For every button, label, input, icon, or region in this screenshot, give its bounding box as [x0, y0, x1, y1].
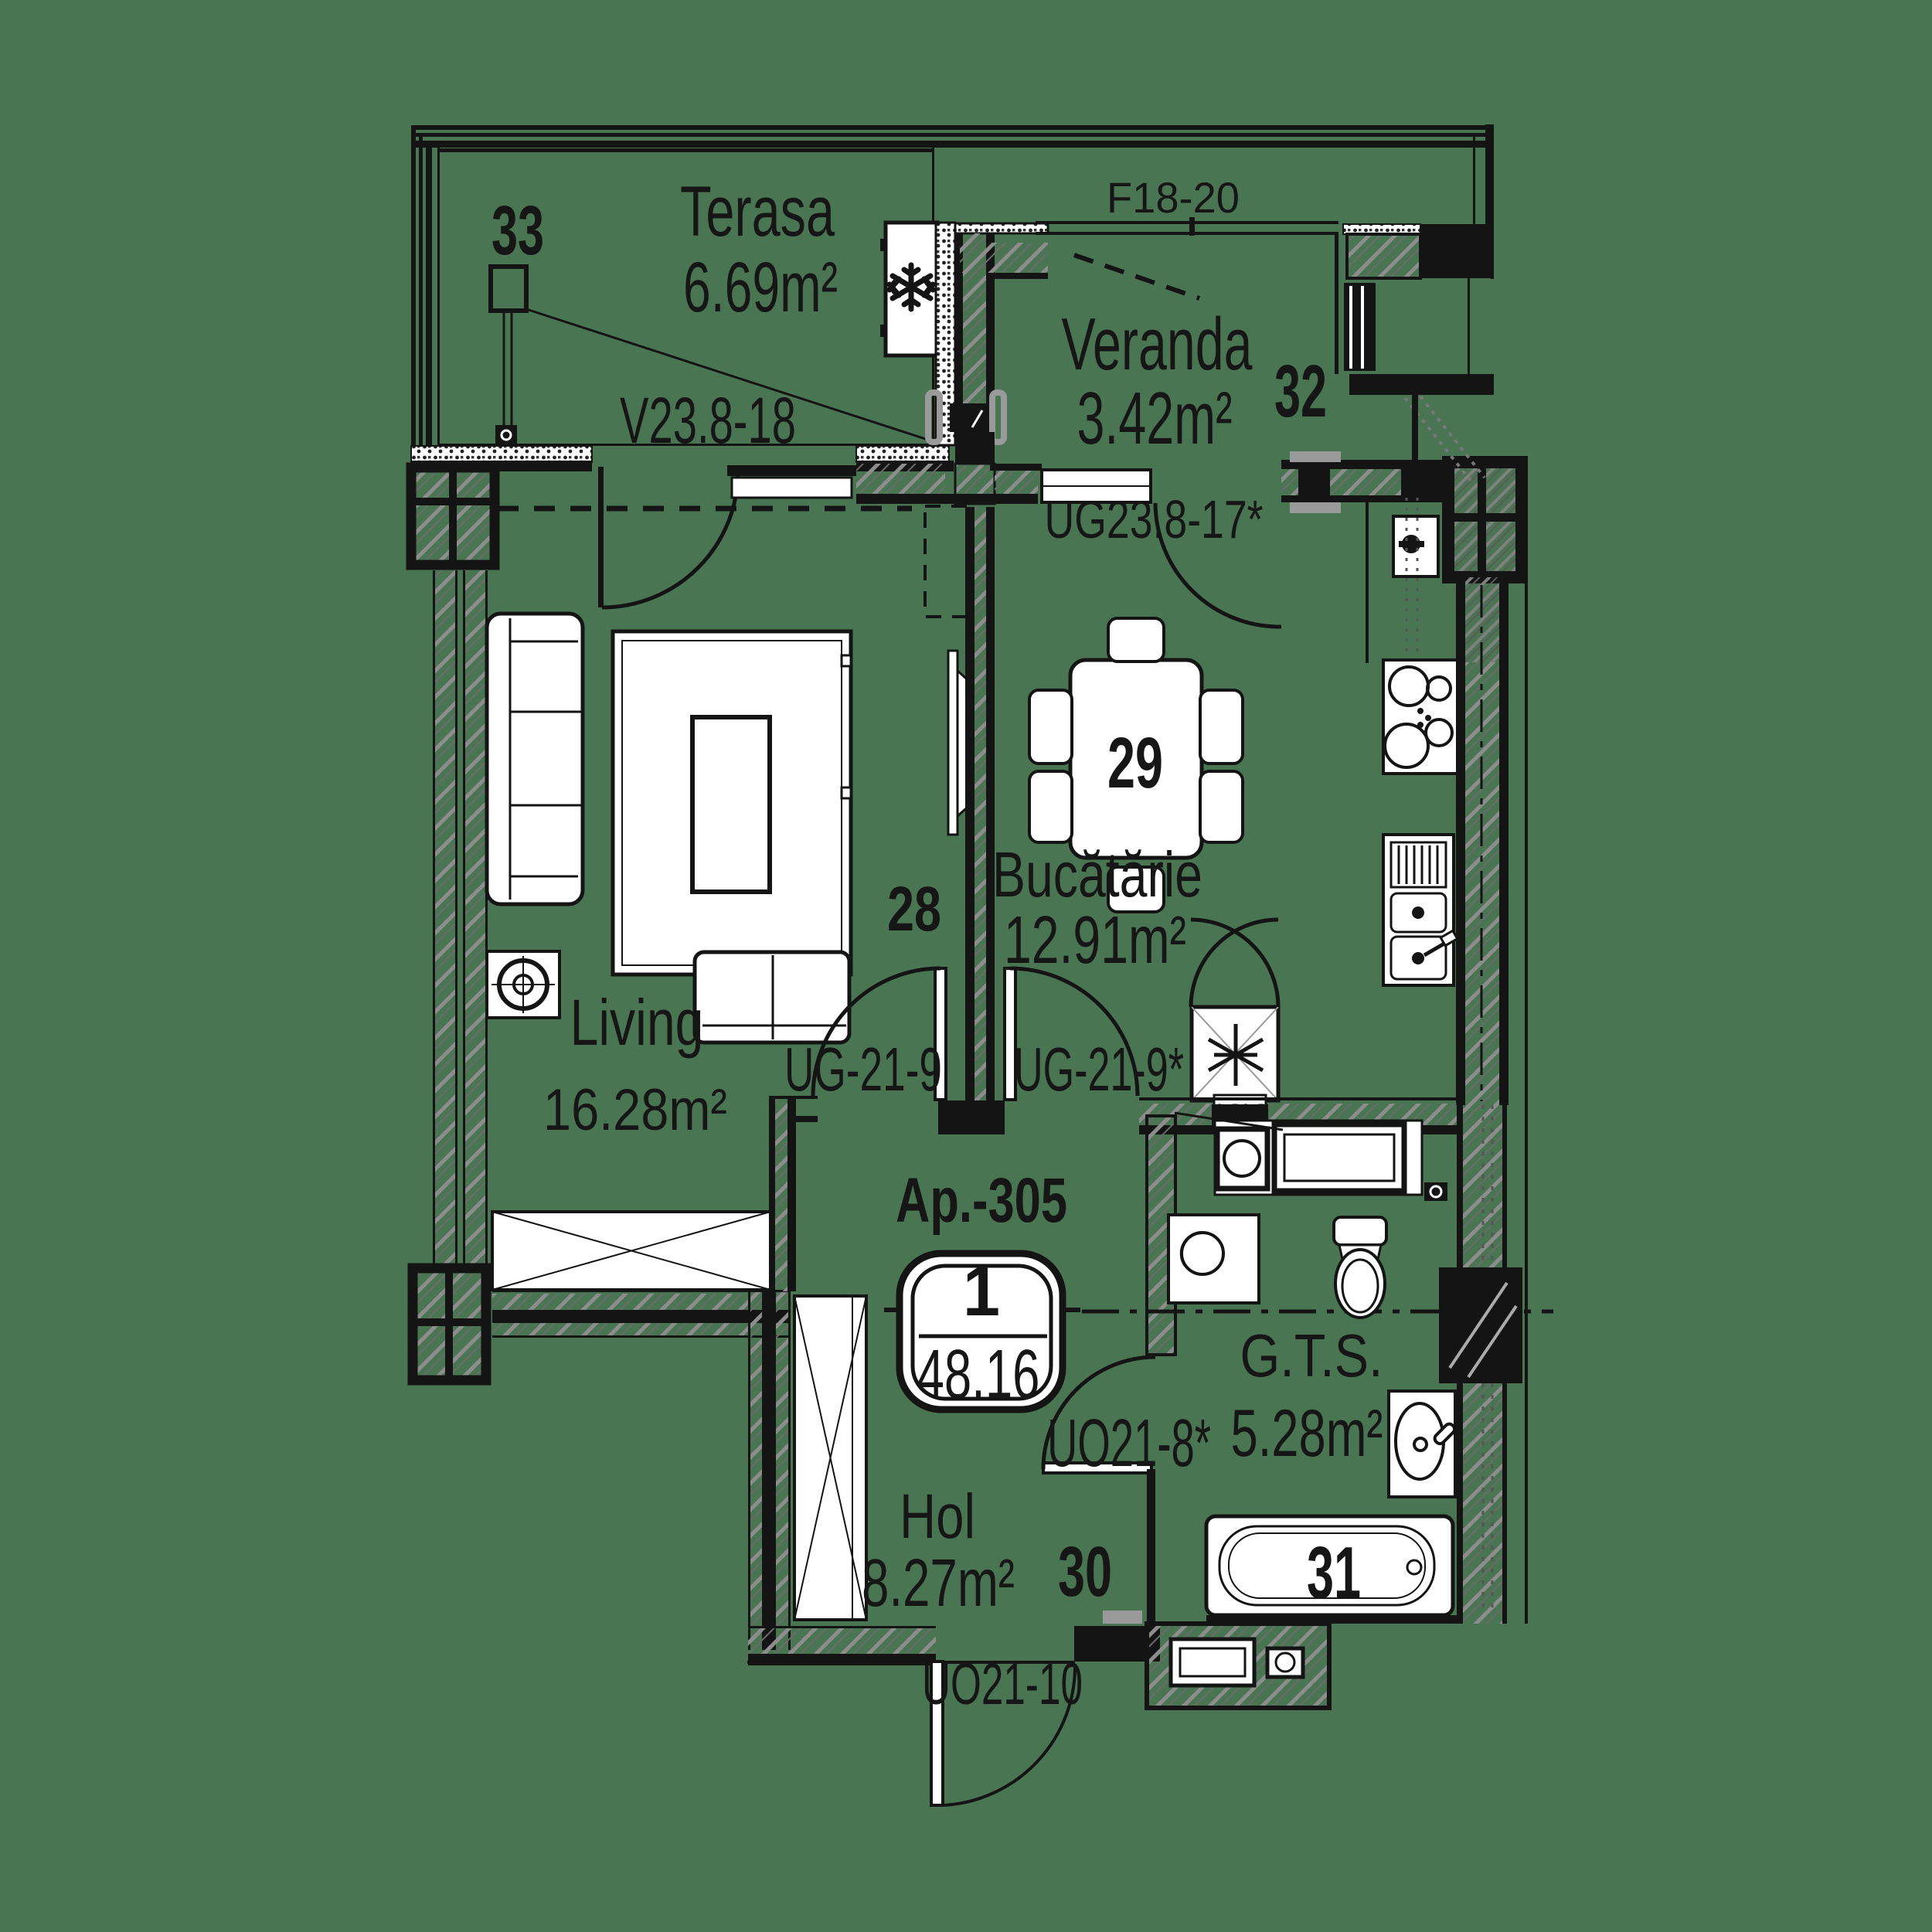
- svg-text:33: 33: [492, 192, 544, 270]
- svg-text:UG-21-9: UG-21-9: [784, 1035, 942, 1104]
- svg-text:3.42m²: 3.42m²: [1077, 377, 1233, 460]
- svg-text:F18-20: F18-20: [1107, 173, 1240, 222]
- svg-text:5.28m²: 5.28m²: [1231, 1396, 1383, 1471]
- svg-text:UG-21-9*: UG-21-9*: [1014, 1035, 1184, 1104]
- svg-text:29: 29: [1107, 723, 1163, 803]
- svg-text:12.91m²: 12.91m²: [1004, 903, 1186, 978]
- svg-text:16.28m²: 16.28m²: [543, 1077, 727, 1143]
- svg-text:Living: Living: [570, 986, 704, 1059]
- svg-text:30: 30: [1058, 1532, 1112, 1611]
- svg-text:UO21-10: UO21-10: [922, 1651, 1083, 1717]
- svg-text:31: 31: [1307, 1532, 1361, 1614]
- svg-text:32: 32: [1274, 350, 1327, 433]
- svg-text:Terasa: Terasa: [680, 172, 835, 251]
- svg-text:6.69m²: 6.69m²: [683, 248, 838, 327]
- svg-text:28: 28: [887, 874, 941, 944]
- svg-text:Veranda: Veranda: [1062, 303, 1253, 386]
- svg-text:V23.8-18: V23.8-18: [620, 384, 796, 457]
- svg-text:Ap.-305: Ap.-305: [896, 1165, 1067, 1236]
- svg-text:UO21-8*: UO21-8*: [1047, 1406, 1211, 1481]
- svg-text:48.16: 48.16: [917, 1336, 1040, 1413]
- svg-text:1: 1: [963, 1252, 1000, 1331]
- svg-text:Bucătărie: Bucătărie: [992, 838, 1202, 910]
- svg-text:G.T.S.: G.T.S.: [1240, 1321, 1383, 1389]
- svg-text:8.27m²: 8.27m²: [862, 1546, 1015, 1621]
- svg-text:Hol: Hol: [900, 1481, 975, 1552]
